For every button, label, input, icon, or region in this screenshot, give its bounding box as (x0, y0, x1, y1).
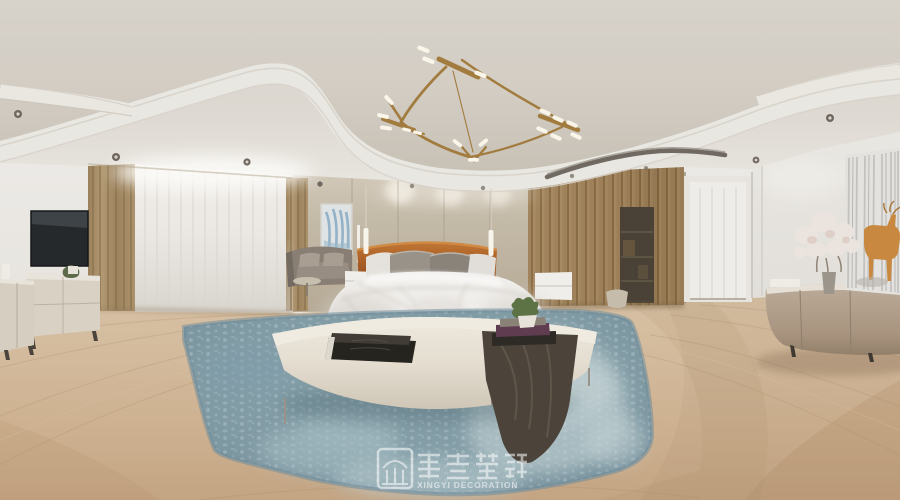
svg-text:XINGYI DECORATION: XINGYI DECORATION (417, 480, 518, 490)
